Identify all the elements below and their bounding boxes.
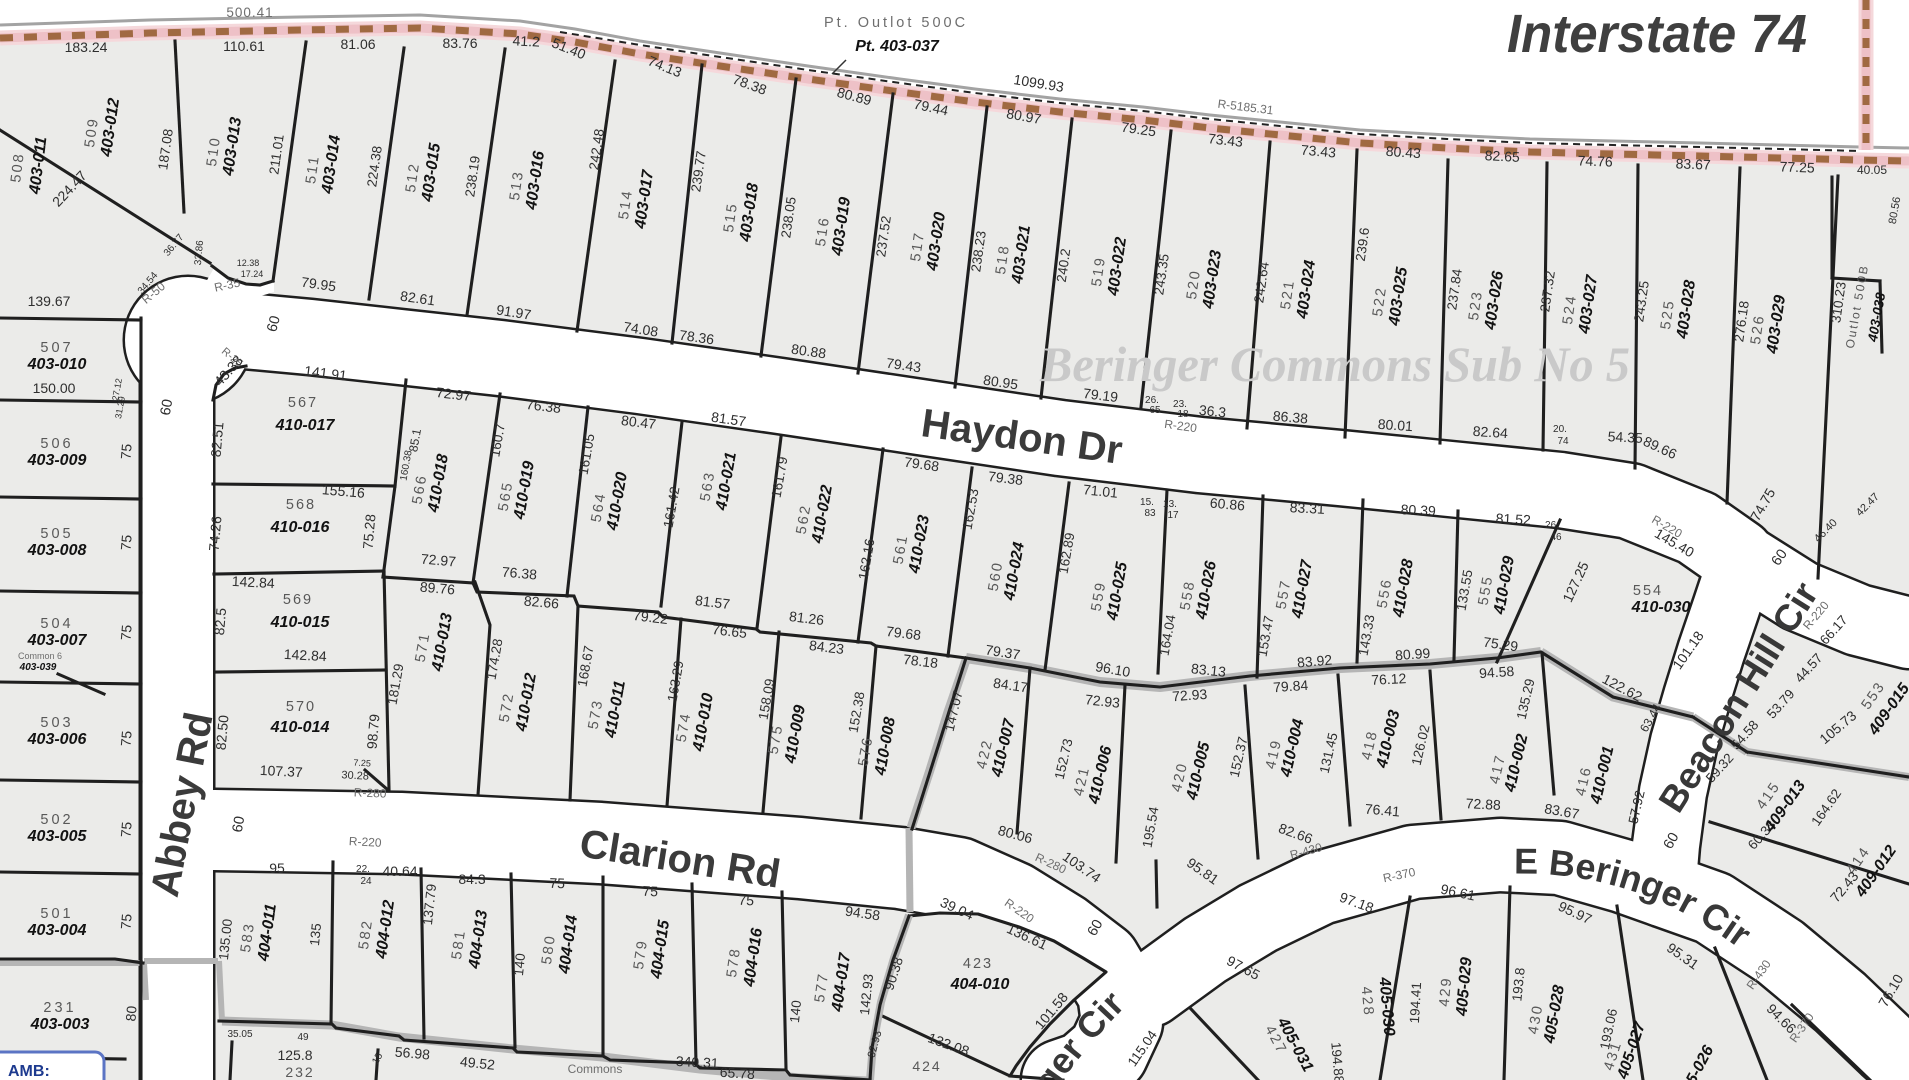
svg-text:65: 65	[1149, 405, 1161, 416]
svg-text:77.25: 77.25	[1779, 158, 1815, 175]
svg-text:98.79: 98.79	[364, 713, 383, 750]
svg-text:Commons: Commons	[568, 1062, 623, 1076]
svg-text:65.78: 65.78	[719, 1064, 755, 1080]
svg-text:13.: 13.	[1163, 499, 1177, 510]
svg-text:410-030: 410-030	[1631, 599, 1691, 616]
svg-text:139.67: 139.67	[28, 293, 71, 309]
svg-text:403-039: 403-039	[19, 662, 57, 673]
svg-text:24: 24	[360, 876, 372, 887]
svg-text:135: 135	[307, 923, 324, 947]
svg-text:20.: 20.	[1553, 424, 1567, 435]
svg-text:17: 17	[1167, 510, 1179, 521]
svg-text:410-014: 410-014	[270, 719, 330, 736]
svg-text:60.86: 60.86	[1209, 495, 1246, 514]
svg-text:502: 502	[40, 812, 73, 828]
svg-text:72.93: 72.93	[1172, 686, 1208, 704]
svg-text:75: 75	[117, 624, 134, 641]
svg-text:AMB:: AMB:	[8, 1063, 50, 1080]
svg-text:107.37: 107.37	[259, 762, 303, 780]
svg-text:49: 49	[297, 1032, 309, 1043]
svg-text:194.88: 194.88	[1328, 1041, 1347, 1080]
svg-text:74.76: 74.76	[1577, 152, 1613, 169]
svg-text:46: 46	[1550, 532, 1562, 543]
svg-text:410-015: 410-015	[270, 614, 331, 631]
svg-text:60: 60	[230, 815, 249, 834]
svg-text:81.06: 81.06	[340, 36, 375, 52]
svg-text:82.66: 82.66	[523, 593, 560, 612]
svg-text:41.2: 41.2	[512, 32, 540, 49]
svg-text:150.00: 150.00	[33, 380, 76, 396]
svg-text:33.86: 33.86	[193, 239, 206, 265]
svg-text:36.3: 36.3	[1198, 402, 1227, 421]
svg-text:82.51: 82.51	[208, 421, 227, 458]
svg-text:22.: 22.	[356, 864, 370, 875]
svg-text:35.05: 35.05	[227, 1029, 252, 1040]
svg-text:403-003: 403-003	[30, 1016, 90, 1033]
svg-text:404-010: 404-010	[950, 976, 1010, 993]
svg-text:424: 424	[912, 1058, 941, 1074]
svg-text:110.61: 110.61	[223, 38, 265, 54]
svg-text:503: 503	[40, 715, 73, 731]
svg-text:15.: 15.	[1140, 497, 1154, 508]
svg-text:94.58: 94.58	[1479, 663, 1515, 681]
svg-text:403-005: 403-005	[27, 828, 88, 845]
svg-text:75: 75	[549, 875, 565, 892]
svg-text:76.41: 76.41	[1364, 801, 1401, 820]
svg-text:Common 6: Common 6	[18, 651, 62, 661]
svg-text:82.5: 82.5	[211, 607, 229, 636]
svg-text:72.88: 72.88	[1465, 795, 1501, 813]
svg-text:75: 75	[117, 534, 134, 551]
svg-text:403-009: 403-009	[27, 452, 87, 469]
svg-text:142.84: 142.84	[283, 646, 327, 664]
svg-text:82.64: 82.64	[1472, 423, 1508, 441]
svg-text:569: 569	[283, 592, 313, 608]
svg-text:73.43: 73.43	[1300, 142, 1337, 161]
svg-text:26.: 26.	[1545, 520, 1559, 531]
svg-text:142.84: 142.84	[231, 573, 275, 591]
svg-text:80.01: 80.01	[1377, 416, 1413, 434]
svg-text:Beringer Commons Sub No 5: Beringer Commons Sub No 5	[1039, 336, 1630, 392]
svg-text:125.8: 125.8	[277, 1047, 312, 1063]
svg-text:80: 80	[122, 1005, 139, 1022]
svg-text:501: 501	[40, 906, 73, 922]
svg-text:86.38: 86.38	[1272, 408, 1309, 427]
svg-text:140: 140	[511, 953, 528, 977]
svg-text:83.76: 83.76	[442, 35, 477, 51]
svg-text:428: 428	[1358, 986, 1377, 1017]
svg-text:75: 75	[117, 443, 134, 460]
svg-text:75: 75	[117, 730, 134, 747]
svg-text:403-008: 403-008	[27, 542, 87, 559]
svg-text:Pt. Outlot 500C: Pt. Outlot 500C	[824, 15, 968, 31]
svg-text:17.24: 17.24	[241, 269, 264, 279]
svg-text:74: 74	[1557, 436, 1569, 447]
svg-text:Interstate 74: Interstate 74	[1507, 4, 1807, 64]
svg-text:80.99: 80.99	[1395, 645, 1431, 663]
svg-text:R-280: R-280	[354, 785, 387, 800]
svg-text:403-004: 403-004	[27, 922, 87, 939]
svg-text:Pt. 403-037: Pt. 403-037	[855, 38, 940, 55]
svg-text:83.92: 83.92	[1296, 652, 1333, 671]
svg-text:95: 95	[269, 860, 285, 876]
svg-text:76.38: 76.38	[501, 564, 538, 583]
svg-text:83.67: 83.67	[1675, 155, 1711, 172]
svg-text:231: 231	[43, 1000, 76, 1016]
svg-text:82.50: 82.50	[213, 714, 232, 751]
svg-text:81.52: 81.52	[1495, 510, 1531, 528]
svg-text:403-010: 403-010	[27, 356, 87, 373]
svg-text:84.3: 84.3	[458, 871, 485, 887]
svg-text:568: 568	[286, 497, 316, 513]
svg-text:554: 554	[1633, 583, 1663, 599]
svg-text:506: 506	[40, 436, 73, 452]
svg-text:80.39: 80.39	[1400, 501, 1436, 519]
svg-text:340.31: 340.31	[675, 1053, 719, 1071]
svg-text:429: 429	[1437, 976, 1456, 1007]
svg-text:423: 423	[963, 956, 993, 972]
svg-text:79.84: 79.84	[1273, 677, 1309, 695]
svg-text:507: 507	[40, 340, 73, 356]
svg-text:54.35: 54.35	[1607, 428, 1643, 446]
svg-text:R-220: R-220	[349, 834, 383, 850]
svg-text:60: 60	[158, 398, 177, 417]
svg-text:570: 570	[286, 699, 316, 715]
svg-text:80.43: 80.43	[1385, 143, 1421, 161]
svg-text:140: 140	[787, 1000, 804, 1024]
svg-text:12.38: 12.38	[237, 258, 260, 268]
svg-text:30.28: 30.28	[341, 769, 369, 782]
svg-text:567: 567	[288, 395, 318, 411]
svg-text:83: 83	[1144, 508, 1156, 519]
svg-text:75: 75	[738, 892, 755, 909]
svg-text:7.25: 7.25	[353, 758, 371, 769]
svg-text:83.31: 83.31	[1289, 499, 1325, 517]
svg-text:504: 504	[40, 616, 73, 632]
svg-text:232: 232	[285, 1064, 314, 1080]
svg-text:75: 75	[642, 883, 659, 900]
svg-text:183.24: 183.24	[65, 39, 108, 55]
svg-text:40.05: 40.05	[1857, 163, 1887, 177]
svg-text:74.26: 74.26	[206, 515, 225, 552]
svg-text:76.12: 76.12	[1371, 670, 1407, 688]
svg-text:72.97: 72.97	[420, 551, 457, 570]
svg-text:410-016: 410-016	[270, 519, 330, 536]
svg-text:82.65: 82.65	[1484, 147, 1520, 165]
svg-text:505: 505	[40, 526, 73, 542]
svg-text:75: 75	[117, 913, 134, 930]
svg-text:75: 75	[117, 821, 134, 838]
svg-text:194.41: 194.41	[1407, 982, 1424, 1024]
svg-text:500.41: 500.41	[226, 5, 273, 20]
svg-text:403-007: 403-007	[27, 632, 88, 649]
svg-text:410-017: 410-017	[275, 417, 336, 434]
svg-text:56.98: 56.98	[394, 1044, 431, 1063]
svg-text:40.64: 40.64	[382, 863, 417, 879]
svg-text:75.28: 75.28	[360, 513, 379, 550]
svg-text:403-006: 403-006	[27, 731, 87, 748]
svg-text:89.76: 89.76	[419, 579, 456, 598]
